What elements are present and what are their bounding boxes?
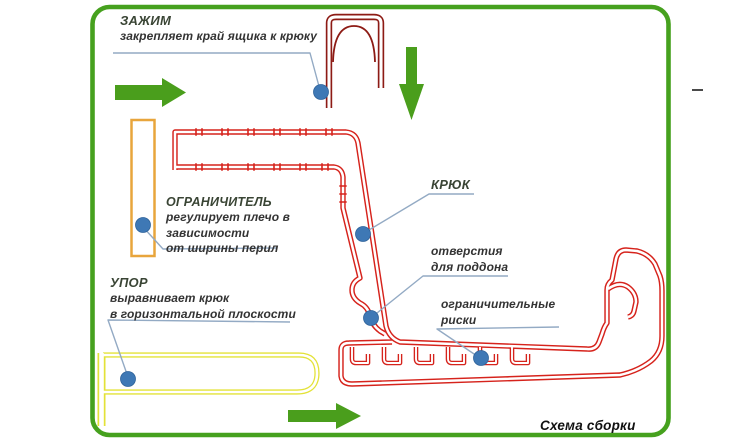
limiter-callout-dot — [136, 218, 151, 233]
holes-callout-dot — [364, 311, 379, 326]
kryuk-title: КРЮК — [431, 177, 470, 193]
stray-dash — [692, 89, 703, 91]
upor-title: УПОР — [110, 275, 296, 291]
arrow-right-icon — [115, 78, 186, 107]
callout-otverstiya: отверстия для поддона — [431, 244, 508, 275]
stop-profile-outline — [102, 353, 318, 426]
otverstiya-line: для поддона — [431, 260, 508, 276]
otverstiya-line: отверстия — [431, 244, 508, 260]
arrow-right-bottom-icon — [288, 403, 361, 429]
riski-line: ограничительные — [441, 297, 555, 313]
zazhim-line: закрепляет край ящика к крюку — [120, 29, 317, 45]
callout-upor: УПОР выравнивает крюк в горизонтальной п… — [110, 275, 296, 322]
callout-riski: ограничительные риски — [441, 297, 555, 328]
ogranichitel-line: зависимости — [166, 226, 290, 242]
callout-zazhim: ЗАЖИМ закрепляет край ящика к крюку — [120, 13, 317, 45]
ogranichitel-line: регулирует плечо в — [166, 210, 290, 226]
clamp-callout-dot — [314, 85, 329, 100]
stop-callout-dot — [121, 372, 136, 387]
callout-kryuk: КРЮК — [431, 177, 470, 193]
zazhim-title: ЗАЖИМ — [120, 13, 317, 29]
riski-line: риски — [441, 313, 555, 329]
ogranichitel-line: от ширины перил — [166, 241, 290, 257]
diagram-title: Схема сборки — [540, 418, 636, 433]
upor-line: в горизонтальной плоскости — [110, 307, 296, 323]
arrow-down-icon — [399, 47, 424, 120]
callout-ogranichitel: ОГРАНИЧИТЕЛЬ регулирует плечо в зависимо… — [166, 194, 290, 257]
diagram-canvas — [0, 0, 751, 442]
hook-callout-dot — [356, 227, 371, 242]
clamp-arch-line — [333, 26, 375, 62]
clamp-profile-outline — [329, 17, 381, 108]
ogranichitel-title: ОГРАНИЧИТЕЛЬ — [166, 194, 290, 210]
hook-teeth-outline — [352, 347, 528, 363]
marks-callout-dot — [474, 351, 489, 366]
upor-line: выравнивает крюк — [110, 291, 296, 307]
assembly-diagram: ЗАЖИМ закрепляет край ящика к крюку ОГРА… — [0, 0, 751, 442]
